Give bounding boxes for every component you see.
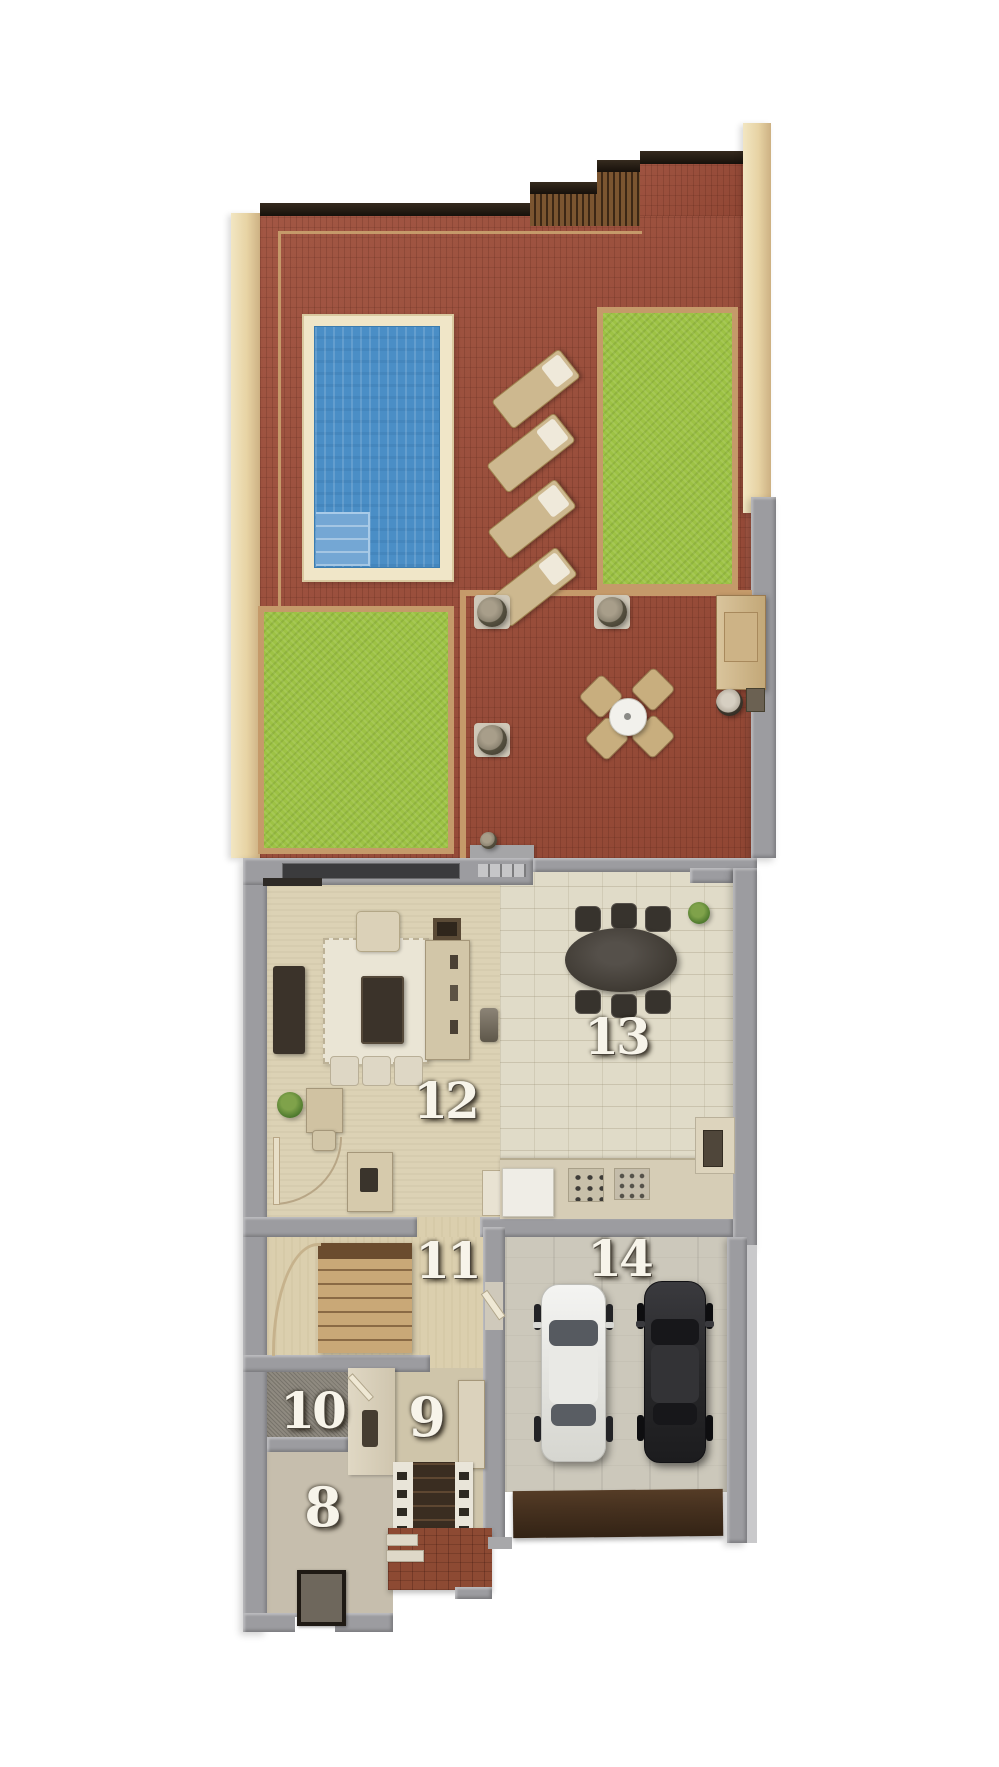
dining-chair-top-3	[645, 906, 671, 932]
hall-bottom-wall	[243, 1355, 430, 1372]
dining-room-plant	[688, 902, 710, 924]
dining-chair-bottom-3	[645, 990, 671, 1014]
room-label-10: 10	[280, 1386, 344, 1436]
dark-car-mirror-l	[636, 1321, 645, 1327]
terrace-border-line-v	[278, 231, 281, 607]
front-door-mat	[297, 1570, 346, 1626]
terrace-border-line-h	[281, 231, 642, 234]
kitchen-fridge	[502, 1168, 554, 1217]
kitchen-hob	[568, 1168, 604, 1202]
bookshelf-item-2	[450, 985, 458, 1001]
room-label-14: 14	[587, 1234, 651, 1284]
wc-fixture	[362, 1410, 378, 1447]
dining-table	[565, 928, 677, 992]
white-car-wheel-rl	[534, 1416, 541, 1442]
porch-step-2	[386, 1550, 424, 1562]
room-label-9: 9	[408, 1390, 446, 1444]
floorplan-canvas: 8 9 10 11 12 13 14	[0, 0, 999, 1767]
room-label-8: 8	[304, 1480, 342, 1534]
white-car-rear-window	[551, 1404, 596, 1426]
right-outer-wall	[733, 868, 757, 1250]
sofa-cushion-2	[362, 1056, 391, 1086]
garage-right-wall	[727, 1237, 747, 1543]
bookshelf-item-3	[450, 1020, 458, 1034]
room-label-13: 13	[584, 1012, 648, 1062]
porch-bottom-edge	[455, 1587, 492, 1599]
waste-bin	[480, 1008, 498, 1042]
white-car-roof	[549, 1346, 598, 1404]
staircase-up	[318, 1243, 412, 1353]
dark-car-rear-window	[653, 1403, 697, 1425]
dark-car-roof	[651, 1345, 699, 1403]
bbq-sink	[716, 689, 743, 716]
top-wall-corner-block	[690, 868, 733, 883]
bbq-counter-inset	[724, 612, 758, 662]
room-label-11: 11	[415, 1236, 479, 1286]
living-room-plant	[277, 1092, 303, 1118]
entry-stairs-down	[413, 1462, 455, 1535]
room-label-12: 12	[413, 1076, 477, 1126]
planter-pot-3	[477, 725, 507, 755]
terrace-railing-bar-4	[640, 151, 745, 164]
terrace-railing-slats-1	[530, 194, 597, 226]
dining-chair-top-1	[575, 906, 601, 932]
terrace-door-pot	[480, 832, 497, 849]
pool-steps	[316, 512, 370, 566]
media-unit	[273, 966, 305, 1054]
porch-step-1	[386, 1534, 418, 1546]
dining-chair-top-2	[611, 903, 637, 929]
left-outer-wall	[243, 858, 267, 1632]
terrace-railing-slats-2	[597, 172, 640, 226]
bookshelf-item-1	[450, 955, 458, 969]
staircase-top-landing	[318, 1243, 412, 1259]
entry-stairs-stringer-left	[393, 1462, 413, 1537]
planter-pot-1	[477, 597, 507, 627]
outdoor-table-center	[624, 713, 631, 720]
bookshelf	[425, 940, 470, 1060]
dark-car-wheel-rr	[706, 1415, 713, 1441]
terrace-path-v	[460, 590, 466, 858]
dark-car-wheel-rl	[637, 1415, 644, 1441]
living-room-slider-window	[282, 863, 460, 879]
garage-step	[488, 1537, 512, 1549]
white-car-wheel-rr	[606, 1416, 613, 1442]
armchair	[356, 911, 400, 952]
entry-stairs-stringer-right	[455, 1462, 473, 1537]
terrace-railing-bar-2	[530, 182, 597, 194]
terrace-right-wall	[743, 123, 771, 513]
side-door	[703, 1130, 723, 1167]
dark-car-windshield	[651, 1319, 699, 1345]
lawn-left	[264, 612, 448, 848]
dark-car	[638, 1277, 712, 1469]
terrace-railing-bar-1	[260, 203, 530, 216]
terrace-railing-bar-3	[597, 160, 640, 172]
coffee-table	[361, 976, 404, 1044]
garage-left-wall	[483, 1227, 505, 1543]
bbq-grill	[746, 688, 765, 712]
garage-door-threshold	[513, 1489, 723, 1538]
white-car-mirror-r	[605, 1322, 614, 1328]
desk-laptop	[360, 1168, 378, 1192]
white-car	[535, 1280, 612, 1468]
dining-room-slider-door	[478, 864, 526, 877]
sofa-cushion-1	[330, 1056, 359, 1086]
garage-right-wall-outer-face	[747, 1245, 757, 1543]
dark-car-mirror-r	[705, 1321, 714, 1327]
door-leaf	[273, 1137, 280, 1205]
white-car-mirror-l	[533, 1322, 542, 1328]
terrace-left-wall	[231, 213, 260, 858]
planter-pot-2	[597, 597, 627, 627]
living-room-window-sill	[263, 878, 322, 886]
kitchen-sink	[614, 1168, 650, 1200]
side-table	[306, 1088, 343, 1133]
mid-wall-left	[243, 1217, 417, 1237]
white-car-windshield	[549, 1320, 598, 1346]
wall-tv	[433, 918, 461, 940]
lawn-right	[603, 313, 732, 584]
vestibule-cabinet	[458, 1380, 485, 1469]
